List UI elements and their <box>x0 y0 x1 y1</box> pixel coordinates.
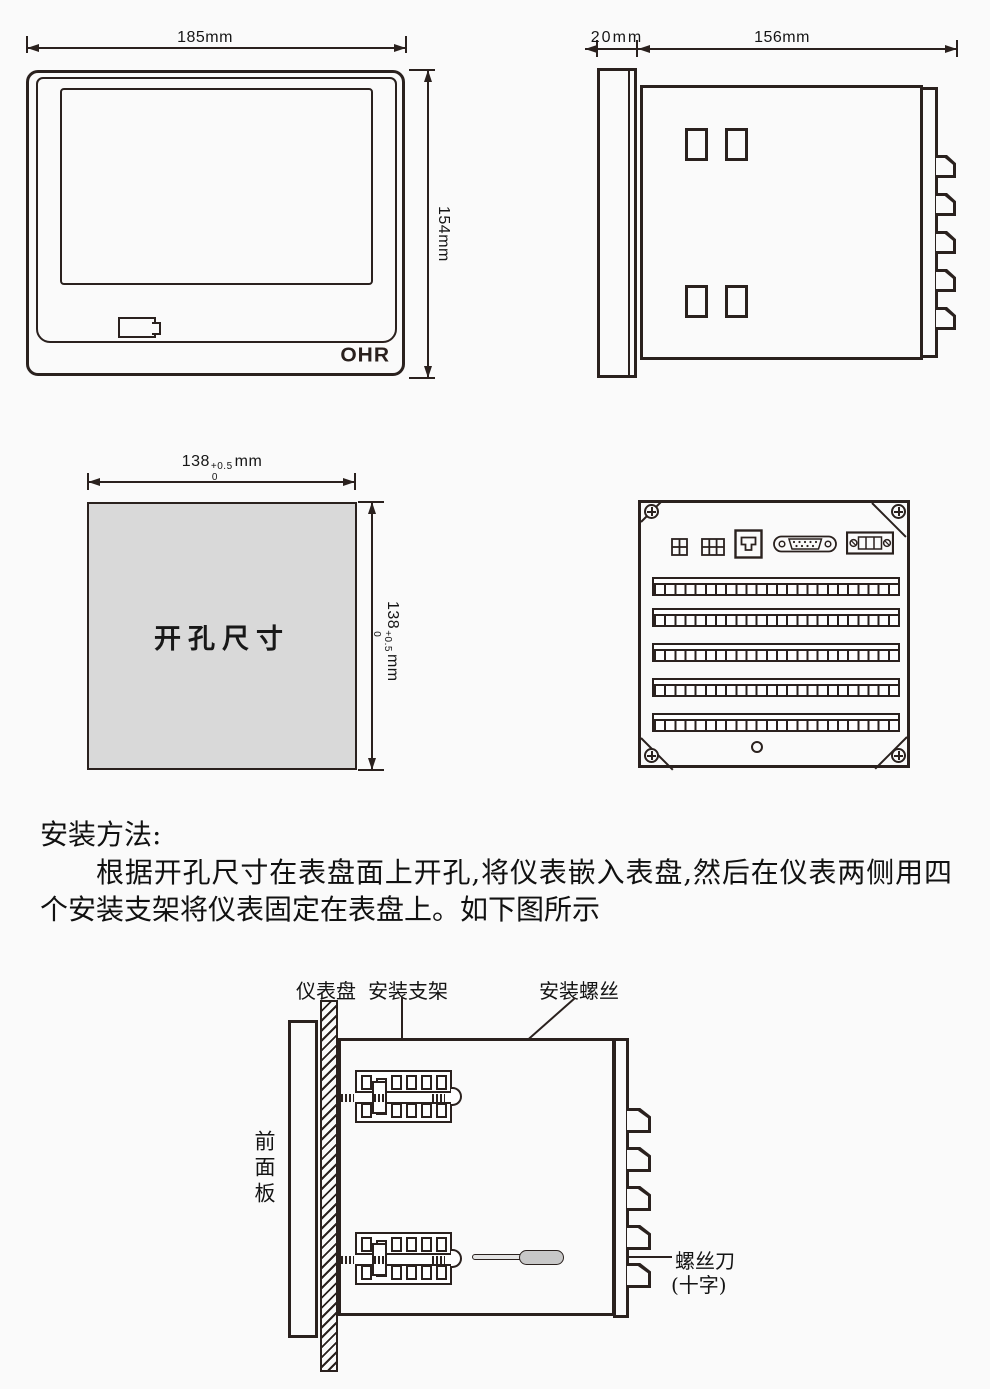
screw-thread <box>374 1094 387 1102</box>
terminal-bump <box>936 193 956 216</box>
side-body <box>640 85 923 360</box>
connector-2x2-icon <box>671 538 688 556</box>
cutout-label: 开孔尺寸 <box>154 617 290 656</box>
dim-arrow <box>368 758 376 770</box>
tol-minus: 0 <box>211 473 233 484</box>
screw-thread <box>374 1256 387 1264</box>
dim-arrow <box>945 45 957 53</box>
side-bezel-dim: 20mm <box>587 29 647 47</box>
terminal-strip <box>652 713 900 732</box>
tol-plus: +0.5 <box>382 630 393 652</box>
screw-label: 安装螺丝 <box>539 975 619 1004</box>
corner-screw-icon <box>891 748 906 763</box>
screw-thread <box>341 1256 354 1264</box>
screwdriver-handle <box>519 1250 564 1265</box>
terminal-strip <box>652 643 900 662</box>
mounting-bracket <box>355 1232 452 1285</box>
screwdriver-shaft <box>472 1254 524 1260</box>
terminal-bump <box>936 307 956 330</box>
install-method-heading: 安装方法: <box>40 813 161 853</box>
terminal-strip <box>652 678 900 697</box>
bracket-label: 安装支架 <box>368 975 448 1004</box>
rear-hole <box>751 741 763 753</box>
corner-screw-icon <box>644 748 659 763</box>
terminal-bump <box>627 1263 651 1288</box>
terminal-bump <box>936 231 956 254</box>
connector-3x2-icon <box>701 538 725 556</box>
dim-tolerance: +0.50 <box>211 462 233 483</box>
terminal-strip <box>652 577 900 596</box>
terminal-bump <box>627 1108 651 1133</box>
dim-arrow <box>27 44 39 52</box>
cutout-square: 开孔尺寸 <box>87 502 357 770</box>
side-bezel-inner-line <box>628 70 630 376</box>
dim-tolerance: +0.50 <box>371 630 392 652</box>
terminal-bump <box>627 1225 651 1250</box>
screwdriver-type-label: (十字) <box>671 1269 727 1298</box>
dim-arrow <box>394 44 406 52</box>
dim-value: 138 <box>182 453 210 470</box>
tol-minus: 0 <box>371 630 382 652</box>
brand-logo: OHR <box>322 345 390 368</box>
corner-screw-icon <box>891 504 906 519</box>
ethernet-port-icon <box>734 529 763 559</box>
mounting-bracket <box>355 1070 452 1123</box>
front-width-dim: 185mm <box>160 29 250 47</box>
dim-arrow <box>88 478 100 486</box>
front-height-dim: 154mm <box>434 206 452 262</box>
terminal-bump <box>936 155 956 178</box>
install-method-paragraph: 根据开孔尺寸在表盘面上开孔,将仪表嵌入表盘,然后在仪表两侧用四个安装支架将仪表固… <box>40 854 952 928</box>
terminal-bump <box>936 269 956 292</box>
dim-line <box>27 47 406 49</box>
dim-unit: mm <box>384 654 401 682</box>
vent-slot <box>685 285 708 318</box>
vent-slot <box>725 285 748 318</box>
screw-thread <box>341 1094 354 1102</box>
usb-port-icon <box>118 317 156 338</box>
corner-screw-icon <box>644 504 659 519</box>
dim-value: 138 <box>384 601 401 629</box>
dim-arrow <box>424 70 432 82</box>
front-screen <box>60 88 373 285</box>
manual-page: 185mm 154mm OHR 20mm 156mm <box>0 0 990 1389</box>
dim-arrow <box>424 366 432 378</box>
terminal-bump <box>627 1186 651 1211</box>
dim-line <box>427 70 429 378</box>
power-terminal-icon <box>846 531 894 555</box>
front-panel-label: 前面板 <box>255 1130 279 1208</box>
panel-wall-hatched <box>320 1000 338 1372</box>
terminal-bump <box>627 1147 651 1172</box>
screw-thread <box>432 1256 445 1264</box>
side-front-bezel <box>597 68 637 378</box>
screw-thread <box>432 1094 445 1102</box>
dim-unit: mm <box>235 453 263 470</box>
dim-arrow <box>368 502 376 514</box>
cutout-height-dim: 138+0.50mm <box>371 601 401 682</box>
tol-plus: +0.5 <box>211 462 233 473</box>
side-rear-strip <box>920 87 938 358</box>
serial-db9-port-icon <box>773 533 837 555</box>
vent-slot <box>725 128 748 161</box>
terminal-strip <box>652 608 900 627</box>
cutout-width-dim: 138+0.50mm <box>167 453 277 483</box>
side-depth-dim: 156mm <box>752 29 812 47</box>
rear-strip <box>613 1038 629 1318</box>
front-panel-shape <box>288 1020 318 1338</box>
dim-arrow <box>343 478 355 486</box>
vent-slot <box>685 128 708 161</box>
